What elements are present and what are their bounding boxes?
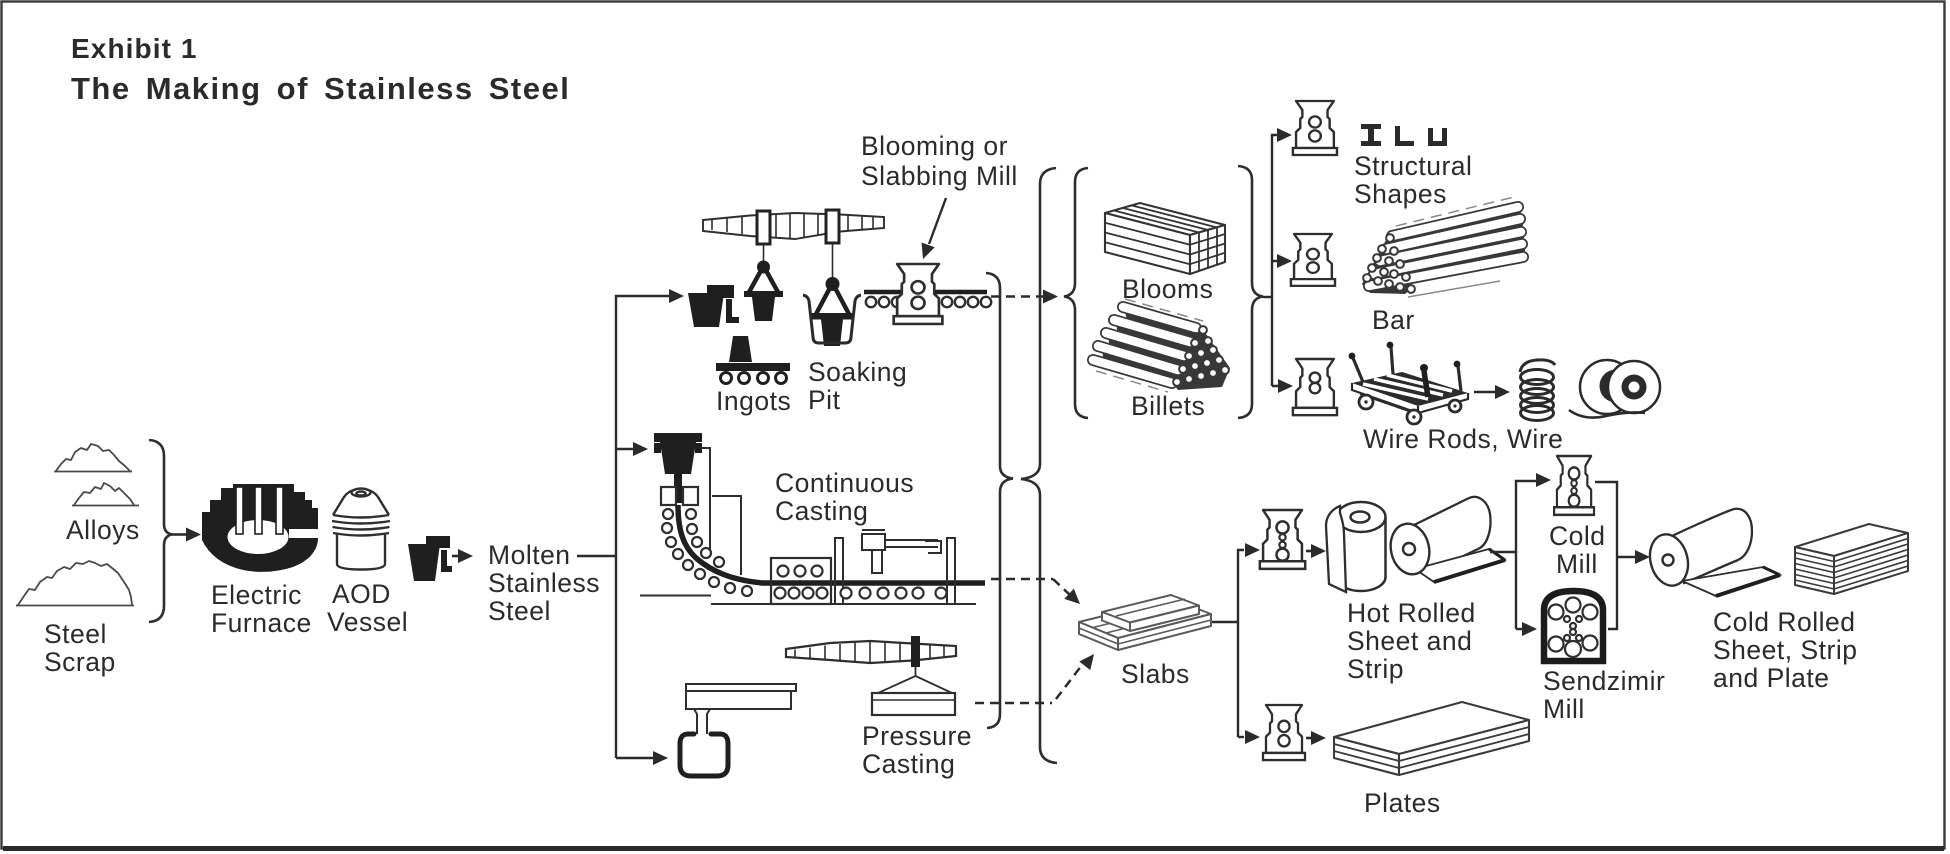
- svg-text:Scrap: Scrap: [44, 647, 116, 677]
- svg-text:Pressure: Pressure: [862, 721, 972, 751]
- svg-text:Mill: Mill: [1556, 549, 1598, 579]
- svg-text:Sheet, Strip: Sheet, Strip: [1713, 635, 1857, 665]
- svg-text:Exhibit 1: Exhibit 1: [71, 33, 198, 64]
- svg-text:Soaking: Soaking: [808, 357, 907, 387]
- svg-text:Alloys: Alloys: [66, 515, 140, 545]
- svg-text:Strip: Strip: [1347, 654, 1404, 684]
- svg-text:Pit: Pit: [808, 385, 841, 415]
- svg-text:Slabbing Mill: Slabbing Mill: [861, 161, 1018, 191]
- svg-text:Cold Rolled: Cold Rolled: [1713, 607, 1856, 637]
- svg-text:Continuous: Continuous: [775, 468, 914, 498]
- svg-text:Molten: Molten: [488, 540, 571, 570]
- svg-text:Wire Rods, Wire: Wire Rods, Wire: [1363, 424, 1563, 454]
- svg-text:Casting: Casting: [862, 749, 955, 779]
- svg-text:Ingots: Ingots: [716, 386, 791, 416]
- svg-text:Vessel: Vessel: [327, 607, 408, 637]
- svg-text:Steel: Steel: [488, 596, 551, 626]
- svg-text:Plates: Plates: [1364, 788, 1441, 818]
- svg-text:Steel: Steel: [44, 619, 107, 649]
- svg-text:Casting: Casting: [775, 496, 868, 526]
- svg-text:AOD: AOD: [332, 579, 391, 609]
- svg-text:Blooms: Blooms: [1122, 274, 1213, 304]
- svg-text:Billets: Billets: [1131, 391, 1205, 421]
- svg-text:Slabs: Slabs: [1121, 659, 1190, 689]
- svg-text:Blooming or: Blooming or: [861, 131, 1008, 161]
- svg-text:Structural: Structural: [1354, 151, 1472, 181]
- svg-text:Cold: Cold: [1549, 521, 1606, 551]
- svg-text:Electric: Electric: [211, 580, 302, 610]
- svg-text:Sheet and: Sheet and: [1347, 626, 1472, 656]
- svg-text:The Making of Stainless Steel: The Making of Stainless Steel: [71, 71, 570, 106]
- svg-text:Stainless: Stainless: [488, 568, 600, 598]
- svg-text:Sendzimir: Sendzimir: [1543, 666, 1665, 696]
- svg-text:Shapes: Shapes: [1354, 179, 1447, 209]
- svg-text:Bar: Bar: [1372, 305, 1415, 335]
- svg-text:Furnace: Furnace: [211, 608, 312, 638]
- svg-text:Hot Rolled: Hot Rolled: [1347, 598, 1476, 628]
- svg-text:and Plate: and Plate: [1713, 663, 1829, 693]
- svg-text:Mill: Mill: [1543, 694, 1585, 724]
